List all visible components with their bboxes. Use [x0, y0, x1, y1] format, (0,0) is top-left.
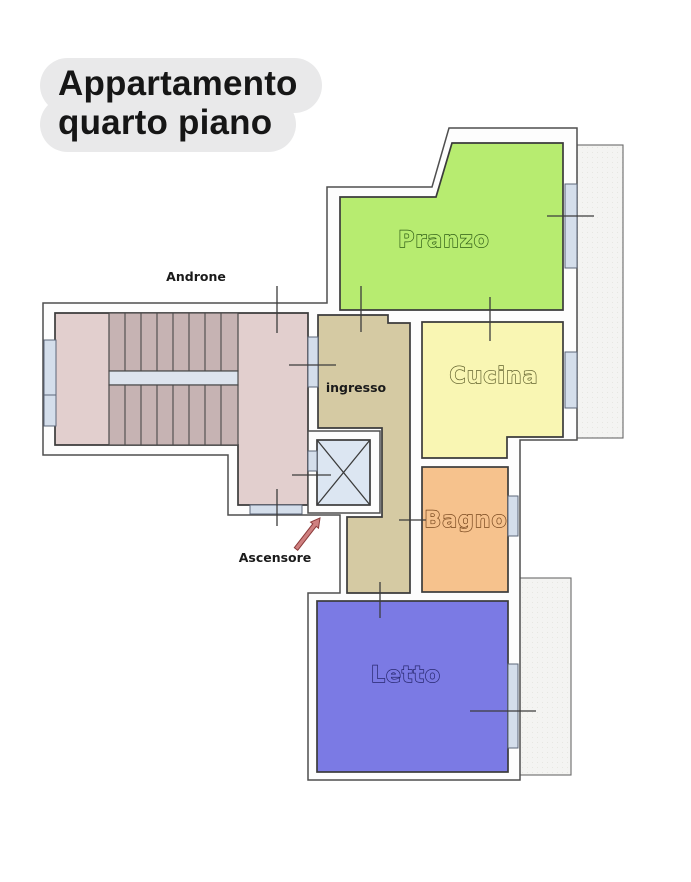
label-pranzo: Pranzo: [398, 228, 489, 253]
label-ingresso: ingresso: [326, 380, 387, 395]
balcony-letto: [518, 578, 571, 775]
balcony-pranzo: [577, 145, 623, 438]
room-pranzo: [340, 143, 563, 310]
label-ascensore: Ascensore: [239, 550, 312, 565]
door-landing-bottom: [250, 505, 302, 514]
door-landing-ingresso: [308, 337, 318, 387]
title-line-2: quarto piano: [40, 97, 296, 152]
room-cucina: [422, 322, 563, 458]
window-pranzo: [565, 184, 577, 268]
door-landing-lift: [308, 451, 317, 471]
window-letto: [508, 664, 518, 748]
floor-plan-page: Appartamento quarto piano: [0, 0, 691, 882]
window-bagno: [508, 496, 518, 536]
stair-mid-landing: [109, 371, 238, 385]
page-title: Appartamento quarto piano: [40, 58, 322, 152]
label-letto: Letto: [371, 663, 441, 688]
window-stairwell: [44, 340, 56, 426]
ascensore-arrow-icon: [294, 518, 320, 550]
label-cucina: Cucina: [450, 364, 539, 389]
label-bagno: Bagno: [424, 508, 507, 533]
window-cucina: [565, 352, 577, 408]
label-androne: Androne: [166, 269, 226, 284]
